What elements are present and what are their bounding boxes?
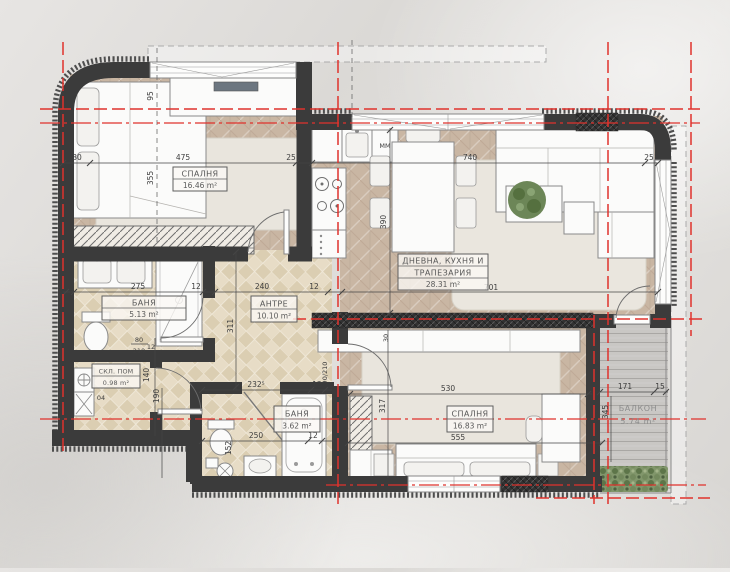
room-label-bedroom2: СПАЛНЯ 16.83 m²: [447, 406, 493, 432]
shelf-icon-bath2: [206, 458, 218, 468]
dim-555: 555: [451, 433, 466, 442]
hatched-wall-top: [576, 113, 618, 131]
dresser-icon: [170, 76, 298, 116]
dim-12a: 12: [191, 282, 201, 291]
storage-number: 04: [97, 394, 105, 402]
dim-475: 475: [176, 153, 191, 162]
dim-25b: 25: [644, 153, 654, 162]
sink-icon: [346, 133, 368, 157]
room-area: 3.62 m²: [282, 422, 311, 431]
dim-240: 240: [255, 282, 270, 291]
dim-740: 740: [463, 153, 478, 162]
builtin-wardrobe-icon: [318, 330, 580, 352]
dim-25a: 25: [286, 153, 296, 162]
dim-door2: 90/210: [321, 362, 329, 385]
boiler-icon-storage: [74, 368, 94, 416]
dim-190: 190: [152, 389, 161, 404]
dim-140: 140: [142, 368, 151, 383]
room-label-storage: СКЛ. ПОМ 0.98 m²: [92, 364, 140, 388]
dim-317: 317: [378, 399, 387, 414]
dim-12d: 12: [312, 380, 322, 389]
dim-345: 345: [601, 405, 610, 420]
room-name: АНТРЕ: [260, 300, 288, 309]
room-name: БАНЯ: [285, 410, 309, 419]
dim-390: 390: [379, 215, 388, 230]
room-name: ТРАПЕЗАРИЯ: [413, 269, 471, 278]
floor-plan: 30 475 25 740 25 95 355 390 275 12 240 1…: [0, 0, 730, 568]
dim-door-w: 80: [135, 336, 143, 344]
room-label-living: ДНЕВНА, КУХНЯ И ТРАПЕЗАРИЯ 28.31 m²: [398, 254, 488, 290]
room-name: ДНЕВНА, КУХНЯ И: [402, 257, 484, 266]
dim-30b: 30: [382, 334, 390, 342]
room-name: БАЛКОН: [619, 404, 658, 413]
dim-95: 95: [146, 91, 155, 101]
dim-door-h: 210: [133, 347, 145, 355]
washing-machine-label: MM: [379, 142, 390, 150]
room-area: 16.83 m²: [453, 422, 487, 431]
room-name: СПАЛНЯ: [181, 170, 218, 179]
room-area: 16.46 m²: [183, 181, 217, 190]
window-living: [352, 114, 544, 130]
room-area: 28.31 m²: [426, 280, 460, 289]
dim-171: 171: [618, 382, 633, 391]
dim-152: 152: [224, 441, 233, 456]
room-label-bedroom1: СПАЛНЯ 16.46 m²: [173, 167, 227, 191]
room-name: БАНЯ: [132, 299, 156, 308]
room-area: 0.98 m²: [103, 379, 130, 387]
hatched-wall: [312, 313, 593, 328]
window-bedroom2: [408, 476, 500, 492]
dim-12c: 12: [147, 343, 155, 351]
hatched-wall-bottom: [502, 476, 548, 492]
dim-15: 15: [655, 382, 665, 391]
window-bedroom1: [150, 62, 296, 78]
room-area: 10.10 m²: [257, 312, 291, 321]
room-area: 5.13 m²: [129, 310, 158, 319]
basin-icon-bath2: [244, 456, 276, 477]
dim-355: 355: [146, 171, 155, 186]
plant-icon: [508, 181, 546, 219]
dim-311: 311: [226, 319, 235, 334]
dim-250: 250: [249, 431, 264, 440]
dim-530: 530: [441, 384, 456, 393]
room-label-hall: АНТРЕ 10.10 m²: [251, 296, 297, 322]
window-right: [655, 160, 671, 304]
room-name: СКЛ. ПОМ: [99, 368, 134, 376]
dim-275: 275: [131, 282, 146, 291]
room-name: СПАЛНЯ: [451, 410, 488, 419]
dim-30: 30: [72, 153, 82, 162]
dim-2325: 232⁵: [247, 380, 264, 389]
dim-12b: 12: [309, 282, 319, 291]
room-label-bath2: БАНЯ 3.62 m²: [274, 406, 320, 432]
room-area: 5.74 m²: [620, 417, 656, 426]
room-label-bath1: БАНЯ 5.13 m²: [102, 296, 186, 320]
